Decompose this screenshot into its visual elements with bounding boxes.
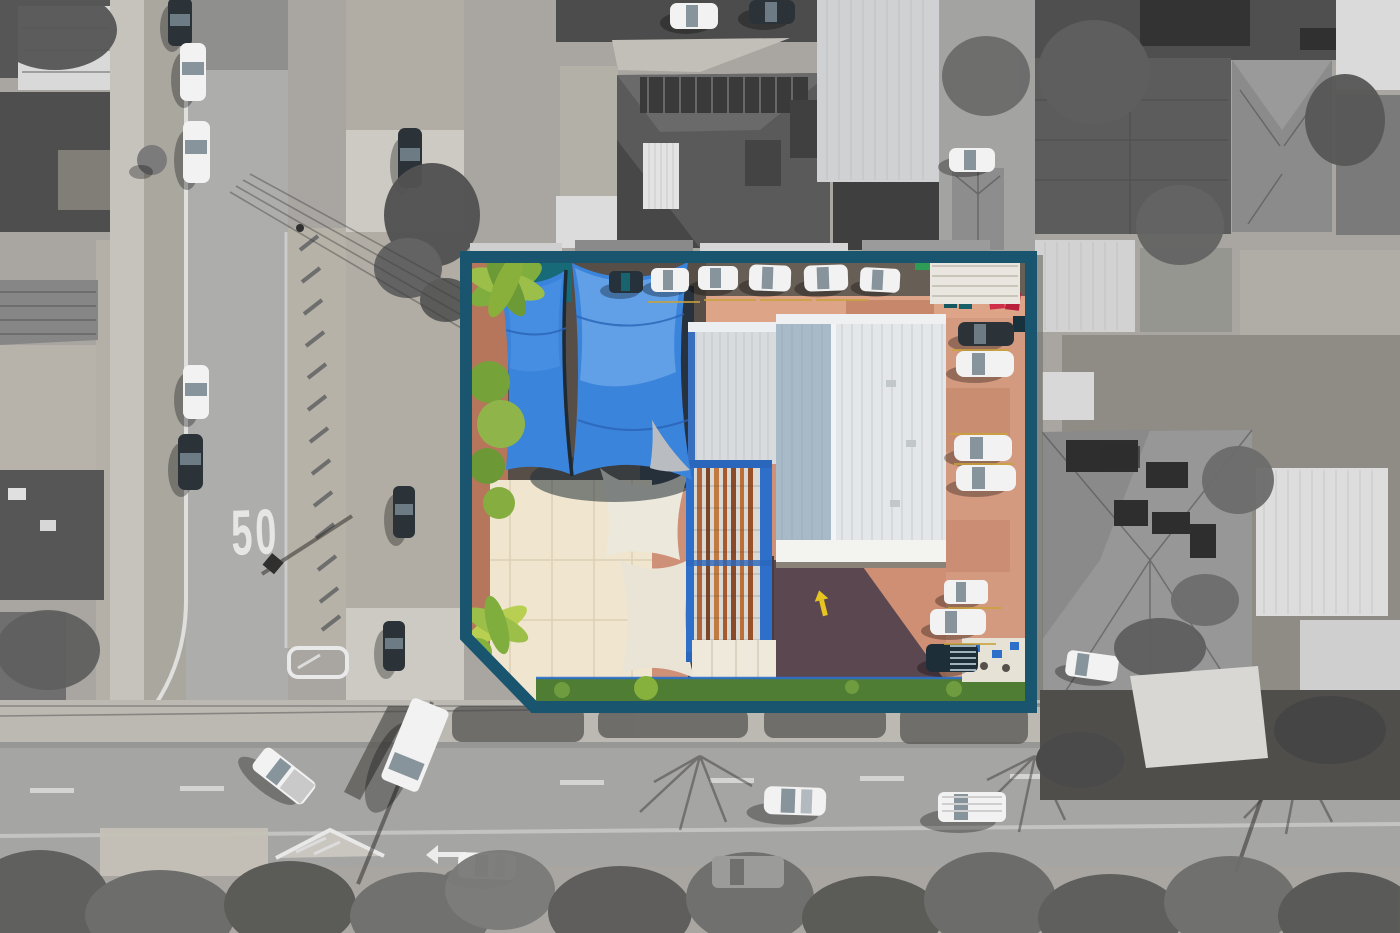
aerial-photo-svg: 50 <box>0 0 1400 933</box>
white-sail-2 <box>620 558 694 678</box>
tiled-roof <box>0 280 98 345</box>
top-centre-houses <box>556 0 1035 255</box>
verge-east <box>346 0 464 708</box>
aerial-photo: 50 <box>0 0 1400 933</box>
small-shed <box>1042 372 1094 420</box>
round-shrub <box>634 676 658 700</box>
silver-building <box>688 322 776 464</box>
van-under-trees <box>712 856 784 888</box>
warehouse-roof <box>776 314 946 568</box>
footpath-west <box>110 0 144 700</box>
white-roofs <box>1035 240 1135 332</box>
highlighted-property <box>460 247 1040 715</box>
light-corrugated-roof <box>817 0 939 182</box>
rust-roof-structure <box>686 460 772 662</box>
solar-panels <box>640 77 808 113</box>
solar-panel <box>1300 28 1336 50</box>
dark-tiled-house <box>617 73 830 248</box>
grey-shade-sail <box>1130 666 1268 768</box>
white-awning <box>930 258 1020 304</box>
